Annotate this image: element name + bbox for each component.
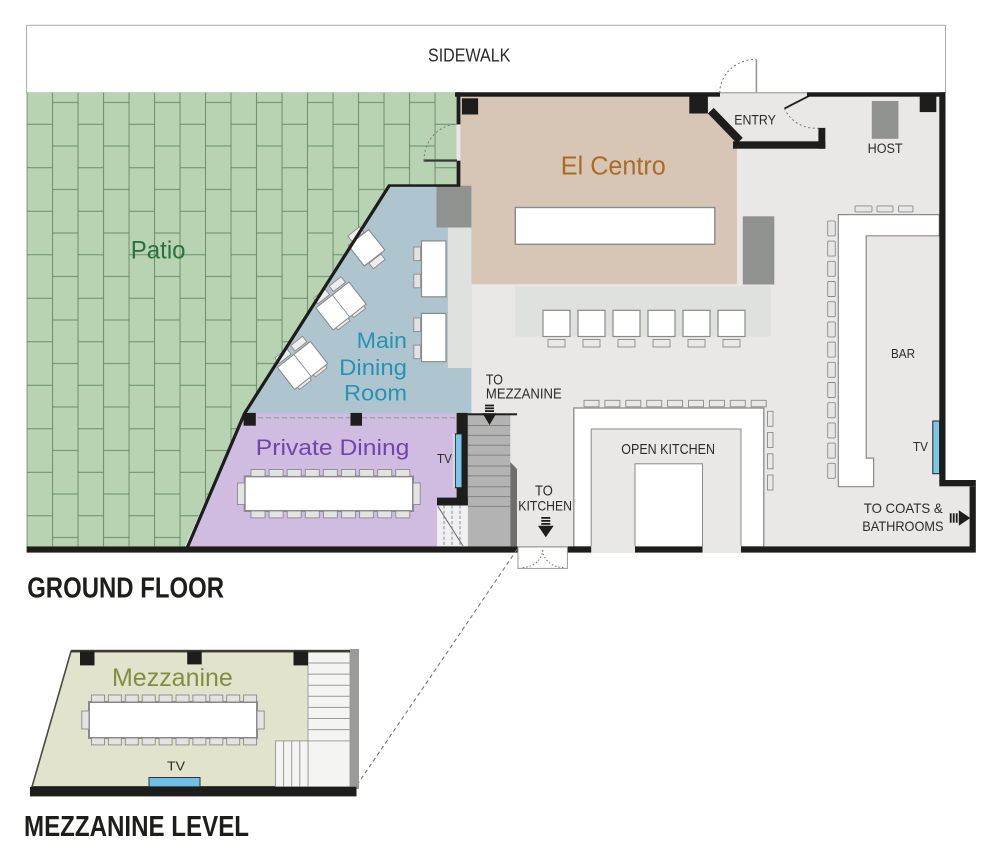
svg-text:Main: Main [357,328,407,353]
svg-text:Mezzanine: Mezzanine [112,664,233,692]
svg-text:Room: Room [344,381,407,406]
svg-text:BATHROOMS: BATHROOMS [862,518,943,534]
svg-text:TV: TV [437,452,453,466]
svg-text:BAR: BAR [891,347,915,361]
svg-text:MEZZANINE: MEZZANINE [486,386,562,402]
svg-text:El Centro: El Centro [561,152,666,180]
svg-text:TO COATS &: TO COATS & [864,500,944,516]
svg-text:MEZZANINE LEVEL: MEZZANINE LEVEL [24,811,249,843]
svg-text:OPEN KITCHEN: OPEN KITCHEN [621,442,715,458]
svg-text:TV: TV [167,759,185,774]
svg-text:TV: TV [913,440,929,454]
svg-text:ENTRY: ENTRY [734,112,776,128]
svg-text:HOST: HOST [868,141,903,156]
svg-text:Patio: Patio [131,236,186,264]
svg-text:SIDEWALK: SIDEWALK [428,46,510,66]
svg-text:Private Dining: Private Dining [256,435,410,460]
svg-text:GROUND FLOOR: GROUND FLOOR [27,573,224,605]
svg-text:KITCHEN: KITCHEN [518,498,572,514]
svg-text:Dining: Dining [339,355,407,380]
